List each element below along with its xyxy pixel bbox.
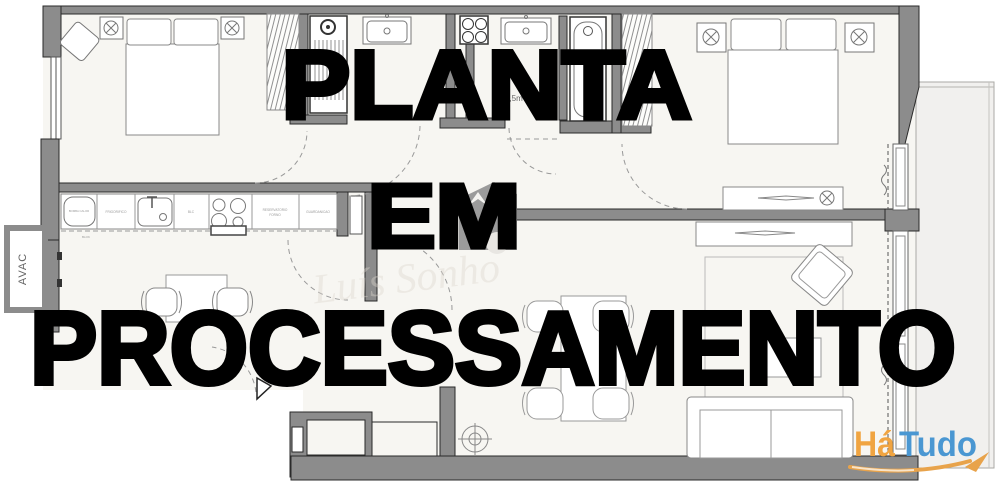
svg-text:FRIGORIFICO: FRIGORIFICO [106, 210, 127, 214]
svg-text:Tudo: Tudo [899, 425, 977, 464]
svg-text:Há: Há [854, 425, 895, 464]
svg-text:EM: EM [368, 167, 521, 267]
svg-text:BLC: BLC [188, 210, 195, 214]
svg-text:FORNO: FORNO [269, 213, 281, 217]
svg-text:AVAC: AVAC [17, 253, 29, 285]
svg-text:BLOK: BLOK [82, 235, 90, 239]
svg-text:PLANTA: PLANTA [282, 32, 692, 139]
svg-text:PROCESSAMENTO: PROCESSAMENTO [30, 290, 956, 405]
svg-text:RESERVATORIO: RESERVATORIO [263, 208, 288, 212]
svg-text:BOMBA CALOR: BOMBA CALOR [69, 209, 89, 213]
svg-text:GUARDANICAO: GUARDANICAO [306, 210, 330, 214]
